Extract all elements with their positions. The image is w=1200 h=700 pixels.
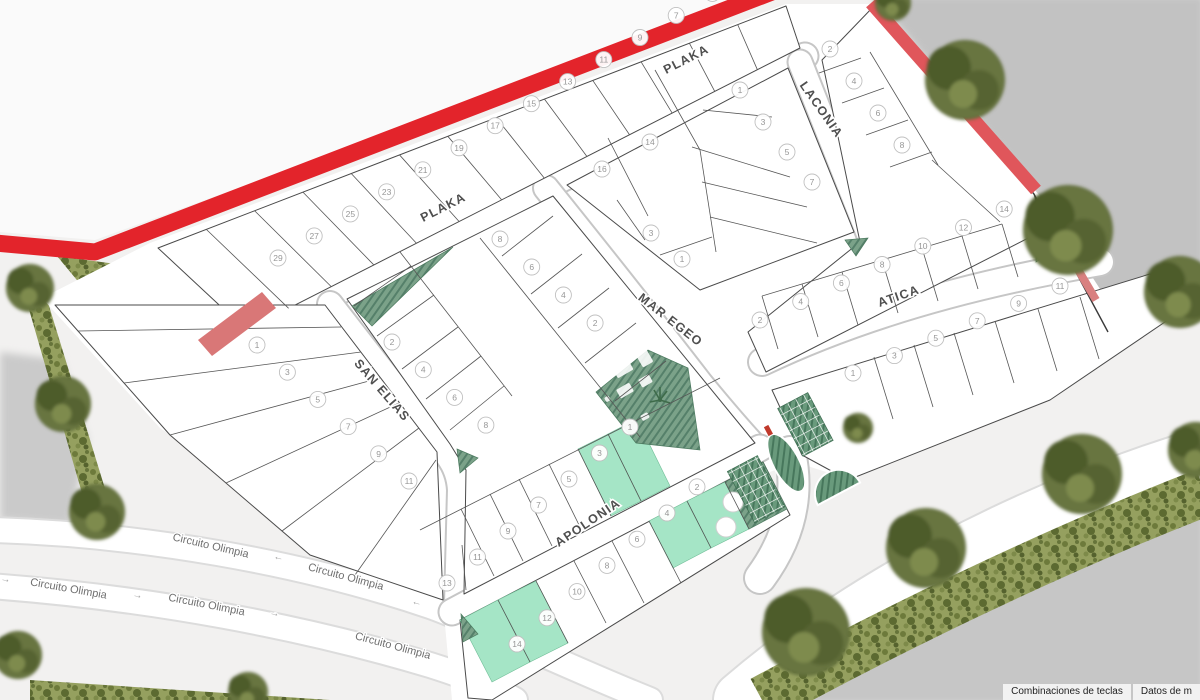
svg-text:23: 23 [382,187,392,197]
gate-scallop [716,517,736,537]
svg-text:12: 12 [542,613,552,623]
svg-text:3: 3 [892,351,897,361]
lot-number: 9 [371,446,387,462]
svg-text:11: 11 [405,476,414,486]
lot-number: 16 [594,161,610,177]
site-plan-screenshot: 2927252321191715131197516141357312468246… [0,0,1200,700]
svg-text:11: 11 [1056,281,1065,291]
lot-number: 7 [804,174,820,190]
svg-text:10: 10 [572,587,582,597]
lot-number: 21 [415,162,431,178]
svg-text:4: 4 [852,76,857,86]
svg-text:4: 4 [421,365,426,375]
lot-number: 12 [539,610,555,626]
lot-number: 11 [401,473,417,489]
svg-text:1: 1 [680,254,685,264]
lot-number: 5 [561,471,577,487]
svg-text:8: 8 [484,420,489,430]
tree-icon [762,588,850,676]
svg-text:19: 19 [454,143,464,153]
svg-text:2: 2 [390,337,395,347]
lot-number: 2 [689,479,705,495]
svg-text:1: 1 [851,368,856,378]
lot-number: 14 [642,134,658,150]
svg-text:13: 13 [442,578,452,588]
tree-icon [1023,185,1113,275]
svg-text:7: 7 [810,177,815,187]
lot-number: 7 [531,497,547,513]
svg-text:13: 13 [563,77,573,87]
svg-text:5: 5 [315,394,320,404]
road-direction-arrow: → [132,589,144,602]
svg-text:2: 2 [828,44,833,54]
tree-icon [1042,434,1122,514]
tree-icon [69,484,125,540]
lot-number: 8 [478,417,494,433]
lot-number: 9 [1011,295,1027,311]
svg-text:10: 10 [918,241,928,251]
svg-text:15: 15 [527,99,537,109]
svg-text:14: 14 [512,639,522,649]
lot-number: 19 [451,140,467,156]
lot-number: 1 [845,365,861,381]
svg-text:8: 8 [900,140,905,150]
lot-number: 29 [270,250,286,266]
svg-text:6: 6 [635,534,640,544]
tree-icon [843,413,873,443]
lot-number: 6 [870,105,886,121]
svg-text:6: 6 [529,262,534,272]
svg-text:1: 1 [255,340,260,350]
lot-number: 25 [342,206,358,222]
svg-text:9: 9 [506,526,511,536]
svg-text:3: 3 [597,448,602,458]
lot-number: 9 [632,30,648,46]
lot-number: 2 [587,315,603,331]
keyboard-shortcuts-button[interactable]: Combinaciones de teclas [1003,684,1131,700]
svg-text:1: 1 [628,422,633,432]
lot-number: 6 [629,531,645,547]
svg-text:7: 7 [536,500,541,510]
svg-text:9: 9 [376,449,381,459]
lot-number: 3 [592,445,608,461]
lot-number: 27 [306,228,322,244]
lot-number: 2 [384,334,400,350]
lot-number: 13 [439,575,455,591]
lot-number: 8 [874,257,890,273]
tree-icon [925,40,1005,120]
lot-number: 13 [560,74,576,90]
svg-text:11: 11 [599,55,608,65]
svg-text:21: 21 [418,165,428,175]
tree-icon [886,508,966,588]
svg-text:5: 5 [567,474,572,484]
lot-number: 3 [279,364,295,380]
lot-number: 1 [732,82,748,98]
lot-number: 8 [492,231,508,247]
lot-number: 14 [509,636,525,652]
lot-number: 11 [470,549,486,565]
svg-text:5: 5 [933,333,938,343]
lot-number: 3 [643,225,659,241]
lot-number: 8 [894,137,910,153]
svg-text:3: 3 [761,117,766,127]
lot-number: 4 [415,362,431,378]
lot-number: 15 [523,96,539,112]
svg-text:4: 4 [798,297,803,307]
svg-text:7: 7 [674,10,679,20]
lot-number: 11 [1052,278,1068,294]
lot-number: 7 [668,7,684,23]
lot-number: 6 [447,389,463,405]
lot-number: 7 [340,419,356,435]
lot-number: 5 [779,144,795,160]
lot-number: 5 [310,391,326,407]
lot-number: 2 [752,312,768,328]
svg-text:6: 6 [839,278,844,288]
lot-number: 4 [555,287,571,303]
svg-text:27: 27 [309,231,319,241]
lot-number: 10 [569,584,585,600]
svg-text:14: 14 [999,204,1009,214]
lot-number: 1 [622,419,638,435]
svg-text:8: 8 [498,234,503,244]
lot-number: 10 [915,238,931,254]
svg-text:5: 5 [785,147,790,157]
svg-text:3: 3 [285,367,290,377]
svg-text:8: 8 [605,560,610,570]
svg-text:4: 4 [665,508,670,518]
lot-number: 5 [928,330,944,346]
svg-text:9: 9 [1016,298,1021,308]
lot-number: 6 [833,275,849,291]
lot-number: 12 [956,220,972,236]
svg-text:6: 6 [876,108,881,118]
svg-text:29: 29 [273,253,283,263]
site-plan-map[interactable]: 2927252321191715131197516141357312468246… [0,0,1200,700]
map-data-button[interactable]: Datos de m [1133,684,1200,700]
svg-text:14: 14 [645,137,655,147]
lot-number: 9 [500,523,516,539]
svg-text:2: 2 [593,318,598,328]
svg-text:8: 8 [880,260,885,270]
svg-text:25: 25 [346,209,356,219]
lot-number: 7 [969,313,985,329]
lot-number: 6 [524,259,540,275]
map-footer: Combinaciones de teclas Datos de m [1003,684,1200,700]
lot-number: 17 [487,118,503,134]
lot-number: 3 [755,114,771,130]
svg-text:4: 4 [561,290,566,300]
lot-number: 1 [674,251,690,267]
lot-number: 14 [996,201,1012,217]
lot-number: 1 [249,337,265,353]
lot-number: 2 [822,41,838,57]
lot-number: 23 [379,184,395,200]
road-direction-arrow: → [0,573,11,586]
svg-text:3: 3 [649,228,654,238]
tree-icon [6,264,54,312]
svg-text:11: 11 [473,552,482,562]
lot-number: 4 [793,294,809,310]
lot-number: 4 [659,505,675,521]
svg-text:2: 2 [758,315,763,325]
svg-text:2: 2 [695,482,700,492]
svg-text:9: 9 [638,33,643,43]
tree-icon [35,376,91,432]
lot-number: 4 [846,73,862,89]
svg-text:1: 1 [738,85,743,95]
svg-text:16: 16 [597,164,607,174]
svg-text:7: 7 [975,316,980,326]
lot-number: 8 [599,557,615,573]
svg-text:17: 17 [490,121,500,131]
lot-number: 3 [886,348,902,364]
svg-text:6: 6 [452,392,457,402]
svg-text:12: 12 [959,223,969,233]
lot-number: 11 [596,52,612,68]
svg-text:7: 7 [346,422,351,432]
